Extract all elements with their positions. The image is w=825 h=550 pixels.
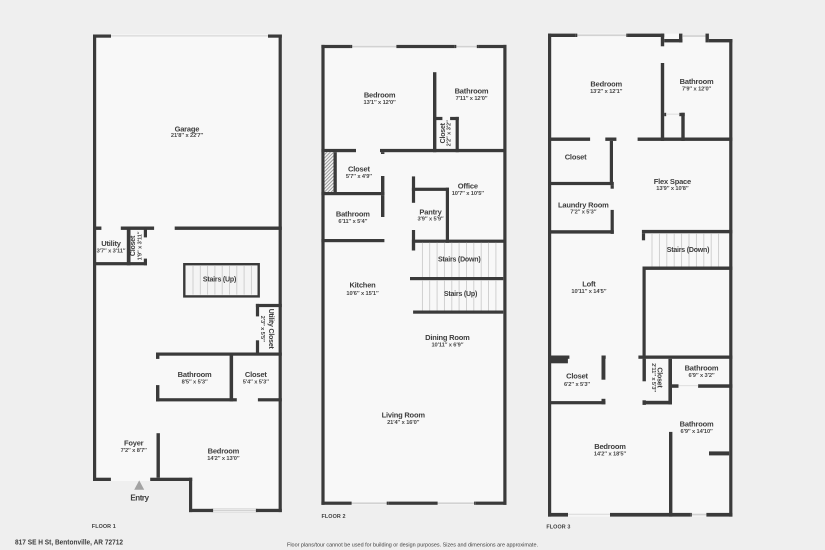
svg-text:Entry: Entry	[130, 494, 149, 503]
svg-text:8′5″ x 5′3″: 8′5″ x 5′3″	[182, 380, 208, 386]
svg-text:Kitchen: Kitchen	[349, 281, 376, 290]
svg-text:FLOOR 1: FLOOR 1	[92, 524, 116, 530]
svg-text:3′7″ x 3′11″: 3′7″ x 3′11″	[97, 248, 126, 254]
svg-text:Bathroom: Bathroom	[680, 420, 714, 429]
svg-text:Closet: Closet	[565, 153, 587, 162]
svg-text:Floor plans/tour cannot be use: Floor plans/tour cannot be used for buil…	[287, 543, 538, 549]
svg-text:6′11″ x 5′4″: 6′11″ x 5′4″	[338, 219, 367, 225]
svg-text:5′7″ x 4′9″: 5′7″ x 4′9″	[346, 174, 372, 180]
svg-text:13′1″ x 12′0″: 13′1″ x 12′0″	[364, 100, 397, 106]
svg-text:3′9″ x 5′9″: 3′9″ x 5′9″	[417, 217, 443, 223]
svg-text:Laundry Room: Laundry Room	[558, 200, 609, 209]
svg-text:7′11″ x 12′0″: 7′11″ x 12′0″	[456, 96, 488, 102]
svg-text:Foyer: Foyer	[124, 439, 144, 448]
svg-text:Closet: Closet	[130, 235, 137, 256]
svg-text:Bedroom: Bedroom	[364, 91, 396, 100]
svg-text:Bathroom: Bathroom	[685, 363, 719, 372]
svg-text:Stairs (Up): Stairs (Up)	[444, 291, 477, 298]
svg-text:13′9″ x 10′8″: 13′9″ x 10′8″	[656, 186, 689, 192]
svg-text:Flex Space: Flex Space	[654, 177, 691, 186]
svg-text:13′2″ x 12′1″: 13′2″ x 12′1″	[590, 89, 623, 95]
svg-text:Bathroom: Bathroom	[178, 370, 212, 379]
svg-text:Closet: Closet	[566, 372, 588, 381]
svg-text:10′7″ x 10′5″: 10′7″ x 10′5″	[452, 191, 485, 197]
svg-text:Bathroom: Bathroom	[336, 209, 370, 218]
svg-text:10′6″ x 15′1″: 10′6″ x 15′1″	[346, 291, 379, 297]
svg-text:Bedroom: Bedroom	[208, 447, 240, 456]
svg-text:Loft: Loft	[582, 279, 596, 288]
svg-text:Living Room: Living Room	[382, 410, 426, 419]
svg-text:2′3″ x 5′5″: 2′3″ x 5′5″	[259, 316, 265, 342]
svg-text:Bathroom: Bathroom	[455, 87, 489, 96]
svg-text:7′9″ x 12′0″: 7′9″ x 12′0″	[682, 87, 711, 93]
svg-text:Closet: Closet	[245, 370, 267, 379]
svg-text:6′9″ x 3′2″: 6′9″ x 3′2″	[688, 373, 714, 379]
svg-text:FLOOR 2: FLOOR 2	[322, 514, 346, 520]
svg-text:Closet: Closet	[348, 165, 370, 174]
svg-text:Stairs (Up): Stairs (Up)	[203, 277, 236, 284]
svg-text:Utility: Utility	[101, 239, 121, 248]
svg-text:Bedroom: Bedroom	[590, 79, 622, 88]
svg-text:Stairs (Down): Stairs (Down)	[438, 257, 481, 264]
svg-text:Dining Room: Dining Room	[425, 333, 470, 342]
svg-text:6′2″ x 5′3″: 6′2″ x 5′3″	[564, 382, 590, 388]
svg-text:21′8″ x 22′7″: 21′8″ x 22′7″	[171, 133, 204, 139]
svg-text:7′2″ x 5′3″: 7′2″ x 5′3″	[570, 210, 596, 216]
svg-text:Pantry: Pantry	[419, 207, 442, 216]
svg-text:7′2″ x 8′7″: 7′2″ x 8′7″	[121, 448, 147, 454]
svg-text:5′4″ x 5′3″: 5′4″ x 5′3″	[243, 380, 269, 386]
svg-text:817 SE H St, Bentonville, AR 7: 817 SE H St, Bentonville, AR 72712	[15, 538, 123, 547]
svg-text:10′11″ x 6′9″: 10′11″ x 6′9″	[431, 342, 463, 348]
svg-text:Bedroom: Bedroom	[594, 442, 626, 451]
svg-text:14′2″ x 18′5″: 14′2″ x 18′5″	[594, 451, 627, 457]
svg-text:FLOOR 3: FLOOR 3	[546, 525, 570, 531]
svg-text:21′4″ x 16′0″: 21′4″ x 16′0″	[387, 420, 420, 426]
svg-text:Utility Closet: Utility Closet	[267, 309, 274, 350]
svg-text:2′11″ x 5′3″: 2′11″ x 5′3″	[650, 363, 656, 392]
svg-text:6′9″ x 14′10″: 6′9″ x 14′10″	[681, 429, 714, 435]
svg-text:2′2″ x 3′2″: 2′2″ x 3′2″	[447, 120, 453, 146]
svg-text:1′9″ x 3′11″: 1′9″ x 3′11″	[138, 231, 144, 260]
svg-text:Office: Office	[458, 182, 478, 191]
svg-text:Bathroom: Bathroom	[680, 77, 714, 86]
svg-text:Stairs (Down): Stairs (Down)	[667, 247, 710, 254]
svg-text:14′2″ x 13′0″: 14′2″ x 13′0″	[207, 456, 240, 462]
svg-text:10′11″ x 14′5″: 10′11″ x 14′5″	[571, 289, 606, 295]
